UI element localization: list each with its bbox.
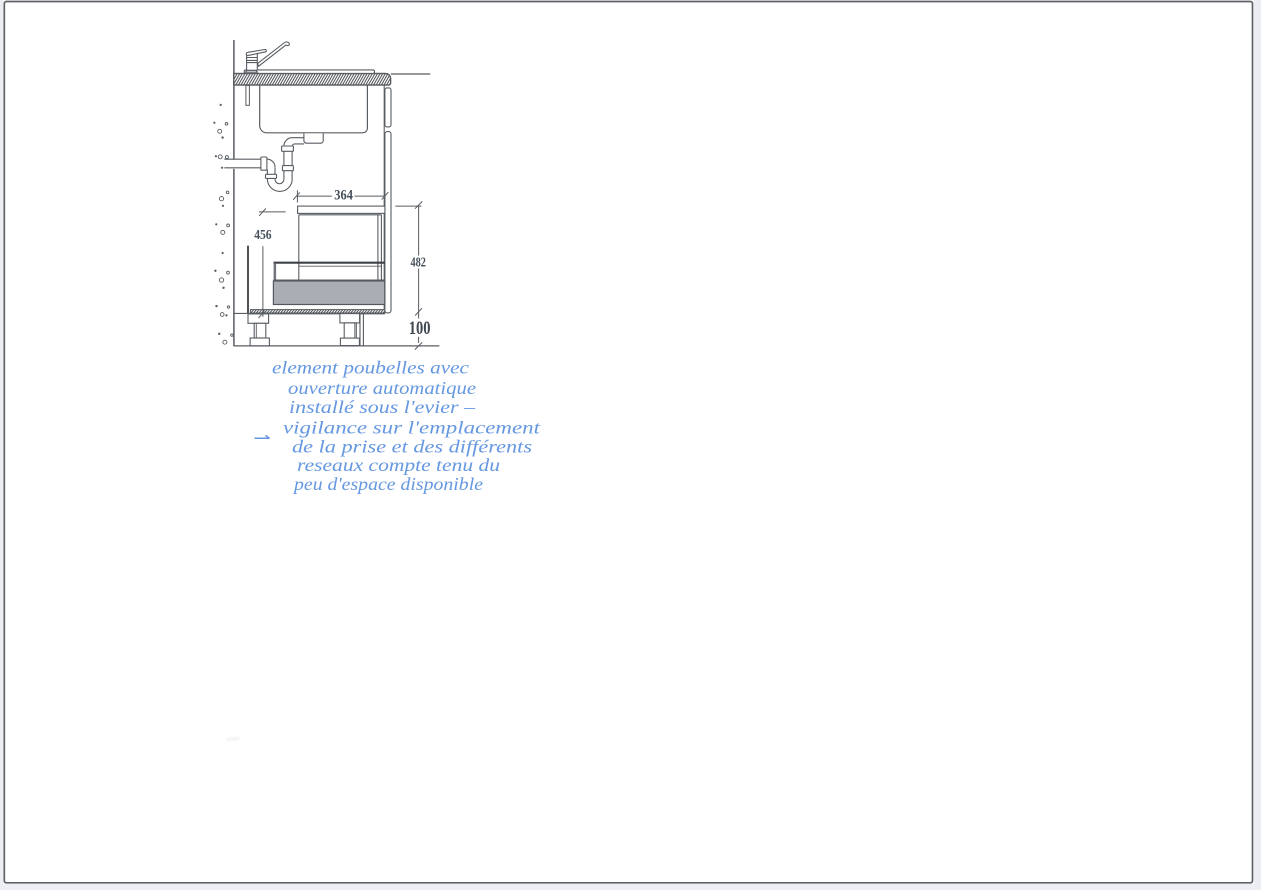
svg-text:de la prise et des différents: de la prise et des différents [292,437,532,457]
svg-text:vigilance sur l'emplacement: vigilance sur l'emplacement [283,418,541,438]
svg-text:installé sous l'evier –: installé sous l'evier – [289,397,475,417]
svg-text:364: 364 [334,188,353,204]
svg-text:100: 100 [409,318,431,339]
svg-text:peu d'espace disponible: peu d'espace disponible [292,474,484,494]
svg-text:482: 482 [411,254,427,269]
svg-text:reseaux compte tenu du: reseaux compte tenu du [297,455,500,475]
svg-text:456: 456 [254,227,272,242]
svg-text:ouverture automatique: ouverture automatique [288,378,476,398]
svg-text:element poubelles avec: element poubelles avec [272,358,469,378]
